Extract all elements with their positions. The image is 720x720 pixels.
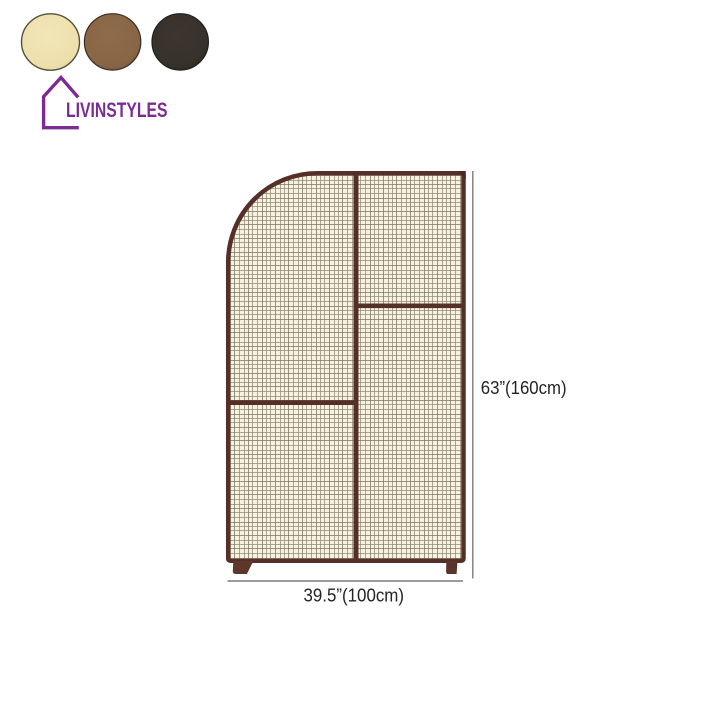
svg-text:39.5”(100cm): 39.5”(100cm) bbox=[304, 585, 405, 606]
svg-text:LIVINSTYLES: LIVINSTYLES bbox=[66, 98, 168, 122]
svg-text:63”(160cm): 63”(160cm) bbox=[481, 377, 567, 398]
